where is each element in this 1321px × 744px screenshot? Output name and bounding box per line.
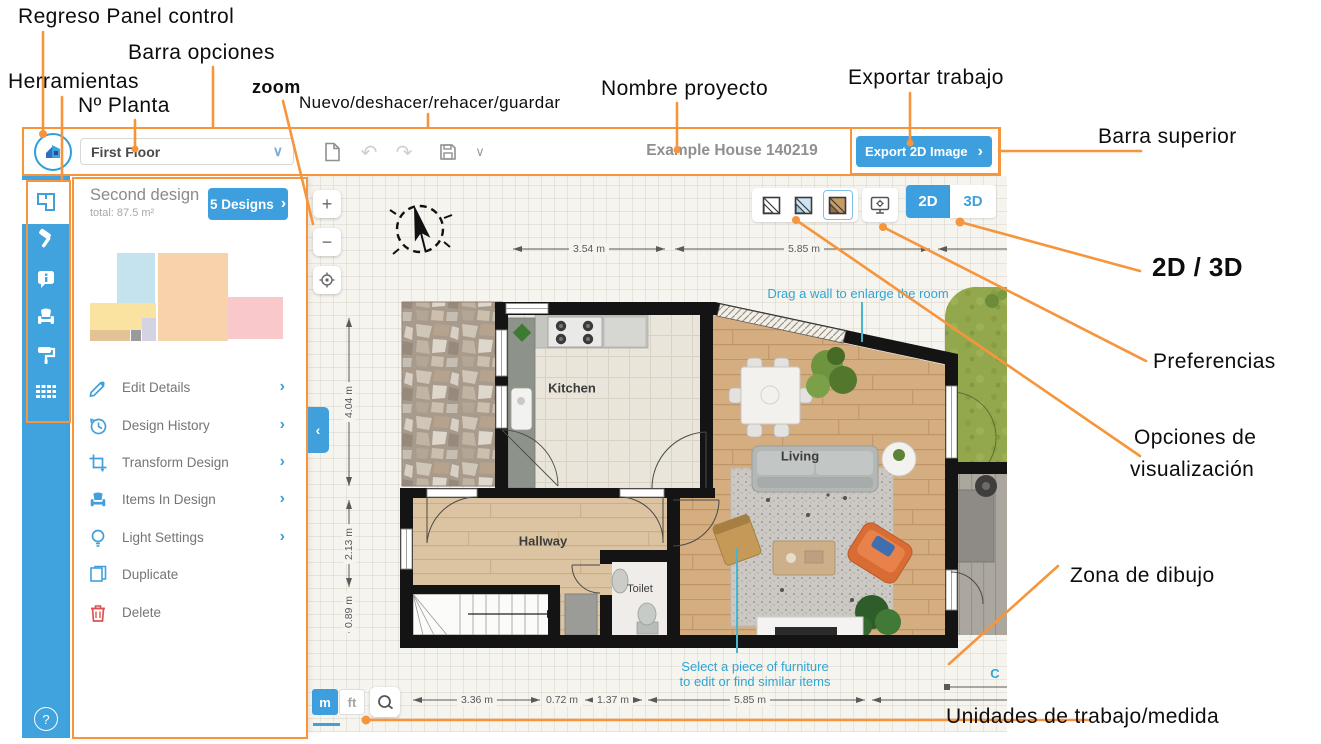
undo-button[interactable]: ↶ bbox=[357, 140, 381, 164]
compass[interactable] bbox=[390, 203, 452, 254]
annotation-zona: Zona de dibujo bbox=[1070, 564, 1215, 588]
armchair-icon bbox=[88, 490, 108, 510]
menu-label: Transform Design bbox=[122, 455, 229, 470]
redo-button[interactable]: ↷ bbox=[392, 140, 416, 164]
thumb-room-peach bbox=[158, 253, 228, 341]
designs-count-button[interactable]: 5 Designs › bbox=[208, 188, 288, 220]
trash-icon bbox=[88, 603, 108, 623]
transform-crop-icon bbox=[88, 453, 108, 473]
dim-left-1: 4.04 m bbox=[343, 382, 355, 422]
menu-label: Edit Details bbox=[122, 380, 190, 395]
menu-item-design-history[interactable]: Design History › bbox=[70, 413, 307, 443]
dim-bottom-1: 3.36 m bbox=[457, 694, 497, 706]
unit-meters-label: m bbox=[319, 695, 331, 710]
lightbulb-icon bbox=[88, 528, 108, 548]
history-clock-icon bbox=[88, 416, 108, 436]
dashboard-back-button[interactable] bbox=[34, 133, 72, 171]
dim-top-2: 5.85 m bbox=[784, 243, 824, 255]
floor-selector-value: First Floor bbox=[91, 144, 273, 160]
toggle-3d-button[interactable]: 3D bbox=[950, 185, 996, 218]
menu-item-duplicate[interactable]: Duplicate bbox=[70, 562, 307, 592]
room-label-living: Living bbox=[781, 449, 819, 464]
thumb-room-blue bbox=[117, 253, 155, 303]
new-document-icon bbox=[324, 142, 341, 162]
preferences-button[interactable] bbox=[862, 188, 898, 222]
plus-icon: + bbox=[322, 194, 333, 215]
floorplanner-logo-icon bbox=[43, 142, 63, 162]
export-2d-image-button[interactable]: Export 2D Image › bbox=[856, 136, 992, 167]
drawing-canvas[interactable]: + − bbox=[307, 176, 1007, 732]
design-name: Second design bbox=[90, 186, 199, 205]
room-label-hallway: Hallway bbox=[519, 534, 567, 549]
toggle-2d-label: 2D bbox=[918, 193, 937, 210]
panel-collapse-button[interactable]: ‹ bbox=[307, 407, 329, 453]
chevron-right-icon: › bbox=[978, 143, 983, 161]
annotation-zoom: zoom bbox=[252, 77, 301, 98]
annotation-preferencias: Preferencias bbox=[1153, 350, 1276, 374]
help-button[interactable]: ? bbox=[22, 700, 70, 738]
coffee-table[interactable] bbox=[773, 541, 835, 575]
undo-icon: ↶ bbox=[361, 140, 378, 165]
save-options-button[interactable]: ∨ bbox=[468, 140, 492, 164]
monitor-gear-icon bbox=[870, 196, 890, 215]
screenshot-stage: + − bbox=[0, 0, 1321, 744]
annotation-exportar: Exportar trabajo bbox=[848, 66, 1004, 90]
project-name: Example House 140219 bbox=[602, 128, 862, 174]
hint-drag-wall: Drag a wall to enlarge the room bbox=[767, 286, 948, 301]
info-bubble-icon bbox=[36, 269, 56, 289]
center-view-button[interactable] bbox=[313, 266, 341, 294]
menu-item-light-settings[interactable]: Light Settings › bbox=[70, 525, 307, 555]
zoom-in-button[interactable]: + bbox=[313, 190, 341, 218]
search-items-button[interactable] bbox=[370, 687, 400, 717]
chevron-right-icon: › bbox=[280, 453, 285, 471]
room-label-toilet: Toilet bbox=[627, 583, 653, 595]
unit-feet-button[interactable]: ft bbox=[339, 689, 365, 715]
annotation-herramientas: Herramientas bbox=[8, 70, 139, 94]
crosshair-icon bbox=[319, 272, 335, 288]
chevron-down-icon: ∨ bbox=[273, 143, 283, 160]
sidebar-item-construction[interactable] bbox=[22, 217, 70, 261]
unit-meters-button[interactable]: m bbox=[312, 689, 338, 715]
stove bbox=[548, 317, 602, 347]
hammer-icon bbox=[35, 228, 57, 250]
stairs[interactable] bbox=[413, 594, 560, 635]
annotation-barra-opciones: Barra opciones bbox=[128, 41, 275, 65]
thumb-room-tan bbox=[90, 330, 130, 341]
chevron-right-icon: › bbox=[280, 490, 285, 508]
hint-select-furniture-line bbox=[736, 548, 738, 653]
menu-label: Delete bbox=[122, 605, 161, 620]
tools-sidebar: ? bbox=[22, 176, 70, 738]
annotation-n-planta: Nº Planta bbox=[78, 94, 170, 118]
chair-icon bbox=[35, 306, 57, 328]
design-total-area: total: 87.5 m² bbox=[90, 207, 154, 219]
floor-selector-dropdown[interactable]: First Floor ∨ bbox=[80, 138, 294, 165]
menu-label: Duplicate bbox=[122, 567, 178, 582]
save-icon bbox=[439, 143, 457, 161]
patio-stone[interactable] bbox=[402, 302, 502, 486]
view-style-outline-button[interactable] bbox=[757, 191, 785, 219]
menu-label: Items In Design bbox=[122, 492, 216, 507]
top-bar: First Floor ∨ ↶ ↷ ∨ Example House 140219… bbox=[22, 128, 1000, 175]
thumb-room-gray bbox=[131, 330, 141, 341]
duplicate-icon bbox=[88, 565, 108, 585]
toggle-3d-label: 3D bbox=[963, 193, 982, 210]
annotation-opciones-1: Opciones de bbox=[1134, 426, 1256, 450]
redo-icon: ↷ bbox=[396, 140, 413, 165]
view-style-group bbox=[752, 188, 858, 222]
dim-bottom-2: 0.72 m bbox=[542, 694, 582, 706]
texture-view-icon bbox=[828, 196, 847, 215]
paint-roller-icon bbox=[35, 344, 57, 366]
minus-icon: − bbox=[322, 232, 333, 253]
sidebar-item-surfaces[interactable] bbox=[22, 371, 70, 415]
chevron-right-icon: › bbox=[281, 195, 286, 213]
menu-label: Design History bbox=[122, 418, 210, 433]
dim-bottom-4: 5.85 m bbox=[730, 694, 770, 706]
outline-view-icon bbox=[762, 196, 781, 215]
menu-item-items-in-design[interactable]: Items In Design › bbox=[70, 487, 307, 517]
help-icon: ? bbox=[34, 707, 58, 731]
dim-bottom-3: 1.37 m bbox=[593, 694, 633, 706]
designs-count-label: 5 Designs bbox=[210, 197, 274, 212]
annotation-regreso: Regreso Panel control bbox=[18, 5, 234, 29]
new-design-button[interactable] bbox=[320, 140, 344, 164]
thumb-room-lavender bbox=[142, 318, 156, 341]
save-button[interactable] bbox=[436, 140, 460, 164]
menu-label: Light Settings bbox=[122, 530, 204, 545]
annotation-barra-superior: Barra superior bbox=[1098, 125, 1237, 149]
annotation-opciones-2: visualización bbox=[1130, 458, 1254, 482]
chevron-down-icon: ∨ bbox=[475, 144, 485, 160]
dim-left-2: 2.13 m bbox=[343, 524, 355, 564]
menu-item-delete[interactable]: Delete bbox=[70, 600, 307, 630]
view-style-texture-button[interactable] bbox=[823, 190, 853, 220]
magnifier-icon bbox=[377, 694, 394, 711]
annotation-unidades: Unidades de trabajo/medida bbox=[946, 705, 1219, 729]
chevron-right-icon: › bbox=[280, 528, 285, 546]
toggle-2d-button[interactable]: 2D bbox=[906, 185, 950, 218]
dim-left-3: 0.89 m bbox=[343, 592, 355, 632]
dim-top-1: 3.54 m bbox=[569, 243, 609, 255]
export-label: Export 2D Image bbox=[865, 144, 968, 159]
floor-plan[interactable] bbox=[307, 176, 1007, 732]
design-thumbnail[interactable] bbox=[70, 236, 307, 366]
thumb-room-pink bbox=[228, 297, 283, 339]
grid-dots-icon bbox=[36, 385, 56, 401]
washer[interactable] bbox=[565, 594, 597, 635]
hint-clipped: C bbox=[990, 666, 999, 681]
pencil-icon bbox=[88, 378, 108, 398]
chevron-right-icon: › bbox=[280, 378, 285, 396]
hint-select-furniture-1: Select a piece of furniture bbox=[681, 659, 828, 674]
menu-item-edit-details[interactable]: Edit Details › bbox=[70, 375, 307, 405]
room-label-kitchen: Kitchen bbox=[548, 381, 596, 396]
zoom-out-button[interactable]: − bbox=[313, 228, 341, 256]
floorplan-icon bbox=[35, 191, 57, 213]
chevron-right-icon: › bbox=[280, 416, 285, 434]
chevron-left-icon: ‹ bbox=[316, 422, 321, 438]
design-panel: Second design total: 87.5 m² 5 Designs ›… bbox=[70, 176, 307, 738]
annotation-2d-3d: 2D / 3D bbox=[1152, 252, 1243, 283]
menu-item-transform-design[interactable]: Transform Design › bbox=[70, 450, 307, 480]
side-table[interactable] bbox=[882, 442, 916, 476]
annotation-nuevo: Nuevo/deshacer/rehacer/guardar bbox=[299, 93, 560, 113]
color-view-icon bbox=[794, 196, 813, 215]
hint-drag-wall-line bbox=[861, 302, 863, 342]
unit-active-indicator bbox=[313, 723, 340, 726]
view-style-color-button[interactable] bbox=[790, 191, 818, 219]
sink bbox=[511, 388, 532, 430]
hint-select-furniture-2: to edit or find similar items bbox=[680, 674, 831, 689]
unit-feet-label: ft bbox=[348, 695, 357, 710]
annotation-nombre: Nombre proyecto bbox=[601, 77, 768, 101]
